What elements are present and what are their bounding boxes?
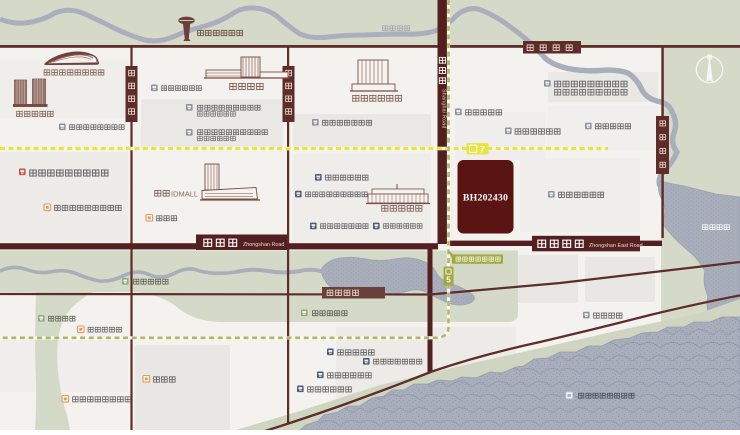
svg-text:Shanghai Road: Shanghai Road <box>440 89 446 129</box>
svg-text:5: 5 <box>446 276 451 285</box>
svg-text:BH202430: BH202430 <box>463 193 508 204</box>
svg-text:IDMALL: IDMALL <box>171 190 198 199</box>
svg-text:7: 7 <box>480 144 485 155</box>
svg-text:Zhongshan East Road: Zhongshan East Road <box>589 243 643 249</box>
svg-text:Zhongshan Road: Zhongshan Road <box>243 242 284 248</box>
